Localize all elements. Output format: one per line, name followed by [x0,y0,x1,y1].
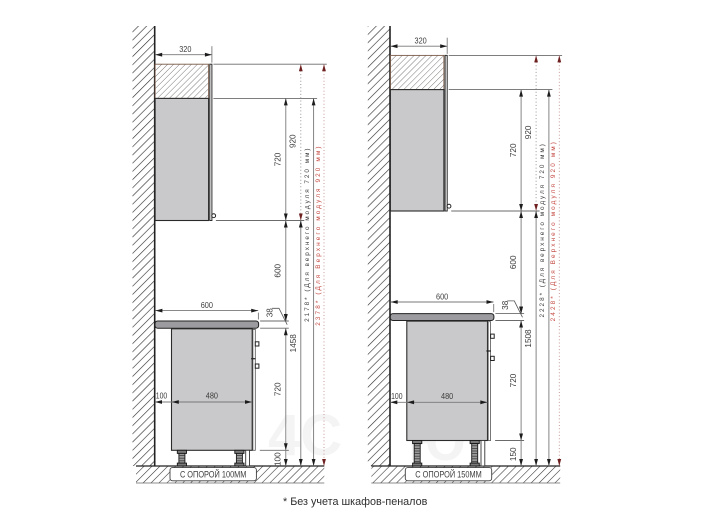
svg-text:600: 600 [436,292,449,301]
svg-text:920: 920 [524,125,533,139]
svg-text:320: 320 [415,37,428,46]
svg-text:С ОПОРОЙ 150ММ: С ОПОРОЙ 150ММ [415,469,482,480]
svg-text:480: 480 [441,392,454,401]
svg-text:С ОПОРОЙ 100ММ: С ОПОРОЙ 100ММ [180,469,247,480]
svg-text:2228* (Для верхнего модуля 720: 2228* (Для верхнего модуля 720 мм) [539,142,546,317]
svg-text:720: 720 [274,382,283,396]
svg-text:720: 720 [274,152,283,166]
svg-text:920: 920 [289,134,298,148]
svg-text:2178* (Для верхнего модуля 720: 2178* (Для верхнего модуля 720 мм) [304,147,311,322]
svg-text:* Без учета шкафов-пеналов: * Без учета шкафов-пеналов [283,496,428,508]
svg-text:720: 720 [509,143,518,157]
svg-text:100: 100 [156,392,168,401]
svg-text:2428* (Для Верхнего модуля 920: 2428* (Для Верхнего модуля 920 мм) [550,140,557,321]
svg-text:38: 38 [501,300,510,310]
svg-text:600: 600 [274,263,283,277]
svg-text:320: 320 [179,45,192,54]
svg-text:1458: 1458 [289,334,298,353]
svg-text:100: 100 [274,452,283,466]
svg-text:100: 100 [391,392,403,401]
svg-text:2378* (Для Верхнего модуля 920: 2378* (Для Верхнего модуля 920 мм) [315,144,322,325]
svg-text:150: 150 [509,447,518,461]
svg-text:600: 600 [201,301,214,310]
svg-text:1508: 1508 [524,329,533,348]
svg-text:480: 480 [206,392,219,401]
svg-text:720: 720 [509,373,518,387]
svg-text:38: 38 [266,308,275,318]
svg-text:600: 600 [509,255,518,269]
